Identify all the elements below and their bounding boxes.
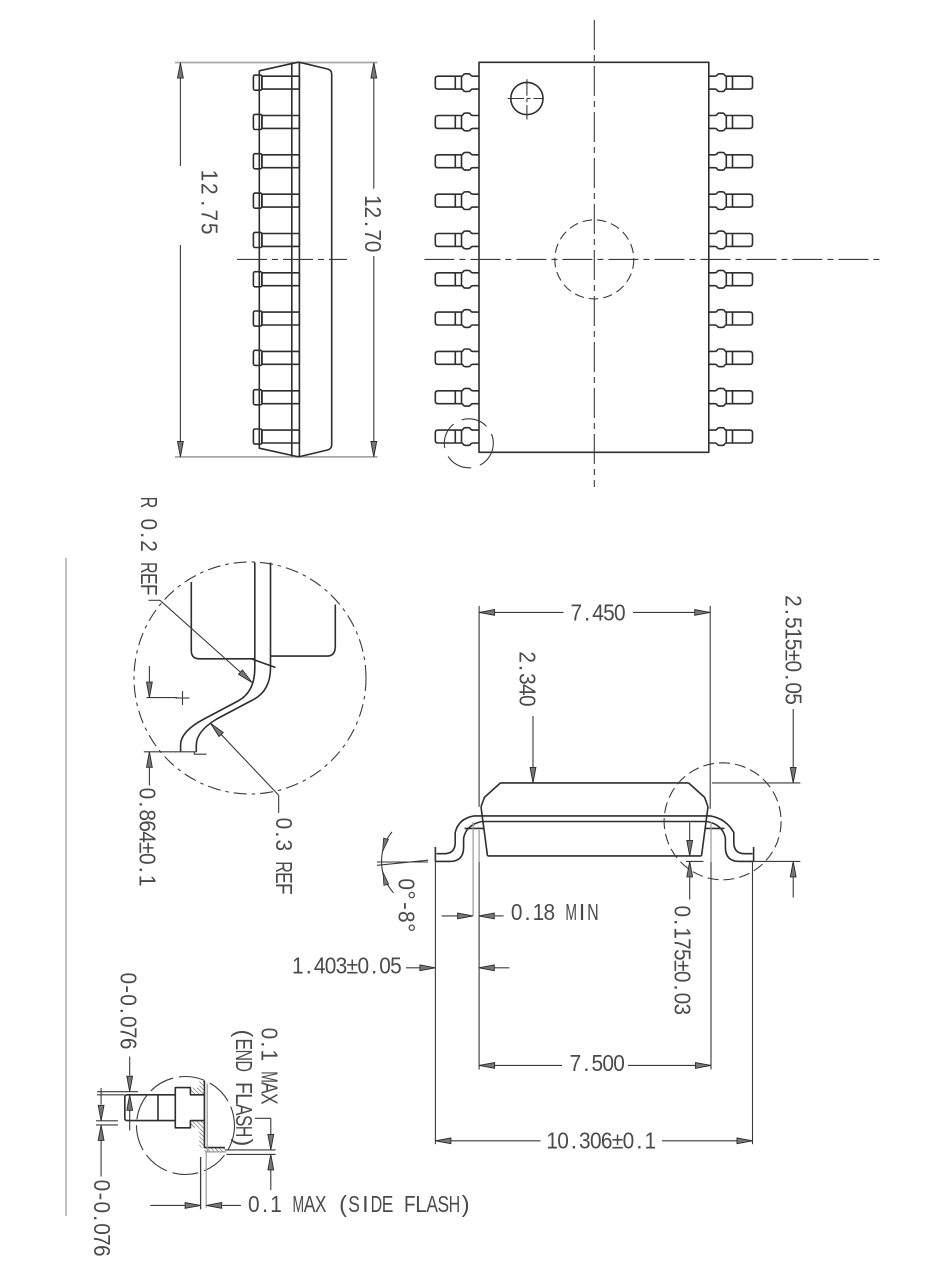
svg-text:1: 1 [644, 1128, 656, 1154]
svg-text:5: 5 [603, 599, 615, 625]
svg-text:4: 4 [592, 599, 604, 625]
svg-text:3: 3 [336, 953, 348, 979]
svg-text:.: . [781, 609, 807, 616]
svg-text:5: 5 [390, 953, 402, 979]
svg-text:4: 4 [135, 831, 161, 843]
svg-text:.: . [583, 1050, 590, 1076]
svg-text:0: 0 [511, 899, 523, 925]
svg-text:D: D [231, 1060, 257, 1072]
svg-text:R: R [136, 497, 162, 509]
svg-text:-: - [89, 1192, 115, 1200]
svg-text:5: 5 [781, 693, 807, 705]
svg-text:7: 7 [197, 210, 223, 222]
svg-text:R: R [136, 562, 162, 574]
svg-text:1: 1 [270, 1191, 282, 1217]
svg-text:-: - [116, 985, 142, 993]
svg-text:0: 0 [89, 1201, 115, 1213]
svg-text:H: H [231, 1126, 257, 1138]
svg-text:.: . [371, 953, 378, 979]
svg-text:.: . [136, 532, 162, 539]
svg-text:7: 7 [670, 938, 696, 950]
svg-text:3: 3 [670, 1004, 696, 1016]
svg-text:5: 5 [781, 617, 807, 629]
svg-text:N: N [231, 1049, 257, 1061]
svg-text:0: 0 [670, 993, 696, 1005]
svg-text:0: 0 [557, 1128, 569, 1154]
svg-text:M: M [257, 1071, 283, 1083]
svg-text:1: 1 [257, 1049, 283, 1061]
svg-text:5: 5 [591, 1050, 603, 1076]
svg-text:2: 2 [781, 595, 807, 607]
svg-text:0: 0 [670, 905, 696, 917]
svg-text:5: 5 [670, 949, 696, 961]
svg-text:.: . [636, 1128, 643, 1154]
svg-text:.: . [524, 899, 531, 925]
svg-text:(: ( [339, 1191, 347, 1217]
svg-text:0: 0 [89, 1223, 115, 1235]
svg-text:5: 5 [781, 639, 807, 651]
svg-text:6: 6 [135, 820, 161, 832]
svg-text:0: 0 [325, 953, 337, 979]
svg-text:I: I [579, 899, 586, 925]
svg-text:8: 8 [544, 899, 556, 925]
svg-text:.: . [271, 831, 297, 838]
svg-text:.: . [116, 1008, 142, 1015]
svg-text:F: F [136, 584, 162, 596]
svg-text:1: 1 [135, 875, 161, 887]
svg-text:3: 3 [271, 839, 297, 851]
svg-text:0: 0 [781, 682, 807, 694]
svg-text:M: M [293, 1191, 305, 1217]
svg-text:0: 0 [623, 1128, 635, 1154]
svg-text:3: 3 [579, 1128, 591, 1154]
svg-text:0: 0 [248, 1191, 260, 1217]
svg-text:0: 0 [515, 695, 541, 707]
svg-text:.: . [670, 919, 696, 926]
svg-text:.: . [670, 984, 696, 991]
svg-text:0: 0 [670, 971, 696, 983]
svg-text:L: L [231, 1093, 257, 1105]
svg-text:1: 1 [197, 170, 223, 182]
svg-text:0: 0 [116, 1016, 142, 1028]
svg-text:): ) [231, 1139, 257, 1147]
svg-text:6: 6 [116, 1038, 142, 1050]
svg-text:0: 0 [271, 818, 297, 830]
svg-text:7: 7 [570, 599, 582, 625]
svg-text:0: 0 [257, 1028, 283, 1040]
svg-text:0: 0 [360, 241, 386, 253]
svg-text:8: 8 [394, 911, 420, 923]
svg-text:E: E [382, 1191, 394, 1217]
svg-text:0: 0 [614, 599, 626, 625]
svg-text:1: 1 [670, 927, 696, 939]
svg-text:1: 1 [546, 1128, 558, 1154]
svg-text:F: F [271, 883, 297, 895]
svg-text:.: . [197, 200, 223, 207]
svg-text:.: . [262, 1191, 269, 1217]
svg-text:.: . [360, 221, 386, 228]
svg-text:0: 0 [89, 1180, 115, 1192]
svg-text:0: 0 [135, 788, 161, 800]
svg-text:): ) [462, 1191, 470, 1217]
svg-text:0: 0 [613, 1050, 625, 1076]
svg-text:A: A [304, 1191, 316, 1217]
svg-text:1: 1 [292, 953, 304, 979]
svg-text:7: 7 [116, 1027, 142, 1039]
svg-text:6: 6 [89, 1245, 115, 1257]
svg-text:0: 0 [357, 953, 369, 979]
svg-text:.: . [89, 1215, 115, 1222]
svg-text:3: 3 [515, 673, 541, 685]
svg-text:0: 0 [136, 518, 162, 530]
svg-text:7: 7 [570, 1050, 582, 1076]
svg-text:F: F [404, 1191, 416, 1217]
svg-text:F: F [231, 1082, 257, 1094]
svg-text:.: . [781, 674, 807, 681]
svg-text:2: 2 [197, 183, 223, 195]
svg-text:X: X [257, 1093, 283, 1105]
svg-text:S: S [348, 1191, 360, 1217]
svg-text:0: 0 [781, 661, 807, 673]
svg-text:°: ° [394, 890, 420, 899]
svg-text:R: R [271, 861, 297, 873]
svg-text:0: 0 [602, 1050, 614, 1076]
svg-text:4: 4 [515, 684, 541, 696]
svg-text:.: . [584, 599, 591, 625]
svg-text:I: I [362, 1191, 369, 1217]
svg-text:(: ( [231, 1030, 257, 1038]
svg-text:0: 0 [590, 1128, 602, 1154]
svg-text:A: A [426, 1191, 438, 1217]
svg-text:2: 2 [515, 651, 541, 663]
svg-text:S: S [231, 1115, 257, 1127]
svg-text:1: 1 [360, 195, 386, 207]
svg-text:.: . [571, 1128, 578, 1154]
svg-text:D: D [371, 1191, 383, 1217]
svg-text:M: M [565, 899, 577, 925]
svg-text:L: L [415, 1191, 427, 1217]
svg-text:.: . [135, 801, 161, 808]
svg-text:1: 1 [781, 628, 807, 640]
svg-text:4: 4 [314, 953, 326, 979]
svg-text:E: E [271, 872, 297, 884]
svg-text:7: 7 [360, 229, 386, 241]
svg-text:E: E [231, 1039, 257, 1051]
svg-text:-: - [394, 902, 420, 910]
svg-text:5: 5 [197, 223, 223, 235]
svg-text:H: H [449, 1191, 461, 1217]
svg-text:0: 0 [394, 878, 420, 890]
svg-text:X: X [315, 1191, 327, 1217]
svg-text:0: 0 [379, 953, 391, 979]
svg-text:0: 0 [135, 853, 161, 865]
svg-text:E: E [136, 573, 162, 585]
svg-text:.: . [135, 866, 161, 873]
svg-text:2: 2 [360, 207, 386, 219]
svg-text:S: S [438, 1191, 450, 1217]
svg-text:N: N [587, 899, 599, 925]
svg-text:°: ° [394, 923, 420, 932]
svg-text:6: 6 [601, 1128, 613, 1154]
svg-text:.: . [305, 953, 312, 979]
svg-text:1: 1 [533, 899, 545, 925]
svg-text:.: . [515, 665, 541, 672]
svg-text:7: 7 [89, 1234, 115, 1246]
svg-text:.: . [257, 1041, 283, 1048]
svg-text:2: 2 [136, 540, 162, 552]
svg-text:0: 0 [116, 972, 142, 984]
svg-text:0: 0 [116, 994, 142, 1006]
svg-text:8: 8 [135, 809, 161, 821]
